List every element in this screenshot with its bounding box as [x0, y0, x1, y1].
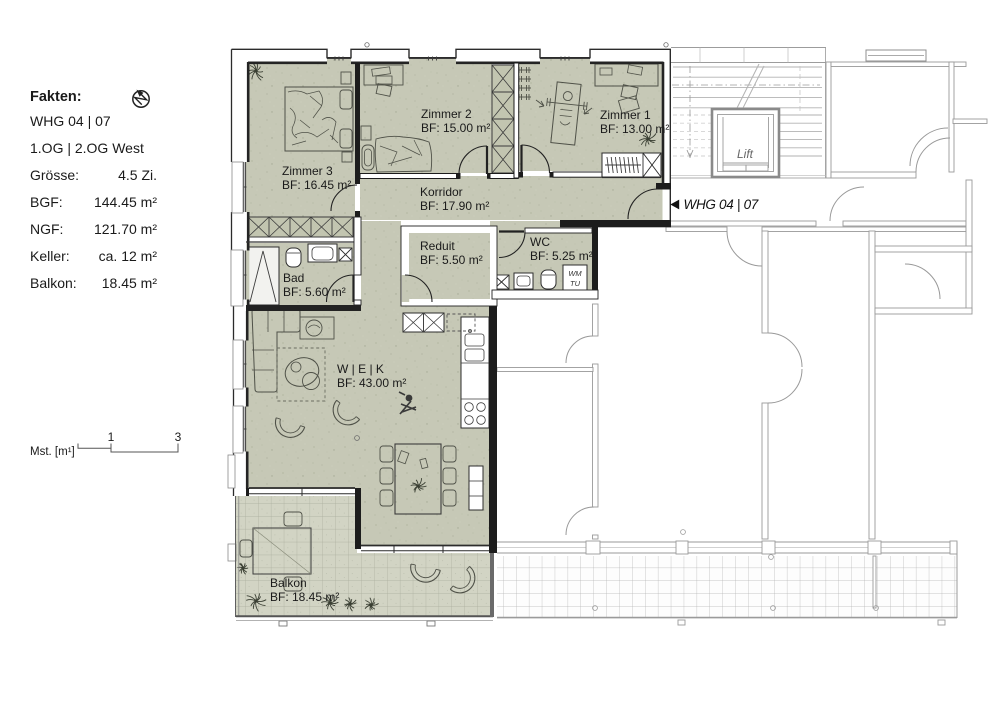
- svg-text:BF: 5.60 m²: BF: 5.60 m²: [283, 285, 346, 299]
- svg-text:18.45 m²: 18.45 m²: [102, 275, 158, 291]
- svg-text:BF: 5.50 m²: BF: 5.50 m²: [420, 253, 483, 267]
- svg-text:BF: 15.00 m²: BF: 15.00 m²: [421, 121, 490, 135]
- svg-text:1.OG | 2.OG West: 1.OG | 2.OG West: [30, 140, 144, 156]
- svg-text:121.70 m²: 121.70 m²: [94, 221, 157, 237]
- svg-text:W | E | K: W | E | K: [337, 362, 384, 376]
- svg-text:BF: 43.00 m²: BF: 43.00 m²: [337, 376, 406, 390]
- svg-text:Lift: Lift: [737, 147, 754, 161]
- svg-text:TU: TU: [570, 279, 581, 288]
- svg-text:144.45 m²: 144.45 m²: [94, 194, 157, 210]
- svg-text:Bad: Bad: [283, 271, 304, 285]
- svg-text:Mst. [m¹]: Mst. [m¹]: [30, 446, 75, 458]
- svg-text:Reduit: Reduit: [420, 239, 455, 253]
- svg-text:ca. 12 m²: ca. 12 m²: [99, 248, 158, 264]
- svg-text:WHG 04 | 07: WHG 04 | 07: [30, 113, 111, 129]
- svg-text:4.5 Zi.: 4.5 Zi.: [118, 167, 157, 183]
- svg-text:BF: 16.45 m²: BF: 16.45 m²: [282, 178, 351, 192]
- svg-text:Grösse:: Grösse:: [30, 167, 79, 183]
- svg-text:NGF:: NGF:: [30, 221, 63, 237]
- svg-text:1: 1: [108, 430, 115, 444]
- svg-text:BGF:: BGF:: [30, 194, 63, 210]
- svg-text:Balkon: Balkon: [270, 576, 307, 590]
- svg-text:Fakten:: Fakten:: [30, 89, 82, 105]
- svg-text:Korridor: Korridor: [420, 185, 463, 199]
- svg-text:BF: 17.90 m²: BF: 17.90 m²: [420, 199, 489, 213]
- svg-text:BF: 13.00 m²: BF: 13.00 m²: [600, 122, 669, 136]
- svg-text:BF: 5.25 m²: BF: 5.25 m²: [530, 249, 593, 263]
- svg-text:BF: 18.45 m²: BF: 18.45 m²: [270, 590, 339, 604]
- svg-text:WM: WM: [568, 269, 582, 278]
- svg-text:Zimmer 3: Zimmer 3: [282, 164, 333, 178]
- svg-text:3: 3: [175, 430, 182, 444]
- svg-text:Balkon:: Balkon:: [30, 275, 77, 291]
- svg-text:Keller:: Keller:: [30, 248, 70, 264]
- svg-text:WC: WC: [530, 235, 550, 249]
- svg-text:WHG 04 | 07: WHG 04 | 07: [684, 197, 759, 212]
- svg-text:Zimmer 1: Zimmer 1: [600, 108, 651, 122]
- svg-text:Zimmer 2: Zimmer 2: [421, 107, 472, 121]
